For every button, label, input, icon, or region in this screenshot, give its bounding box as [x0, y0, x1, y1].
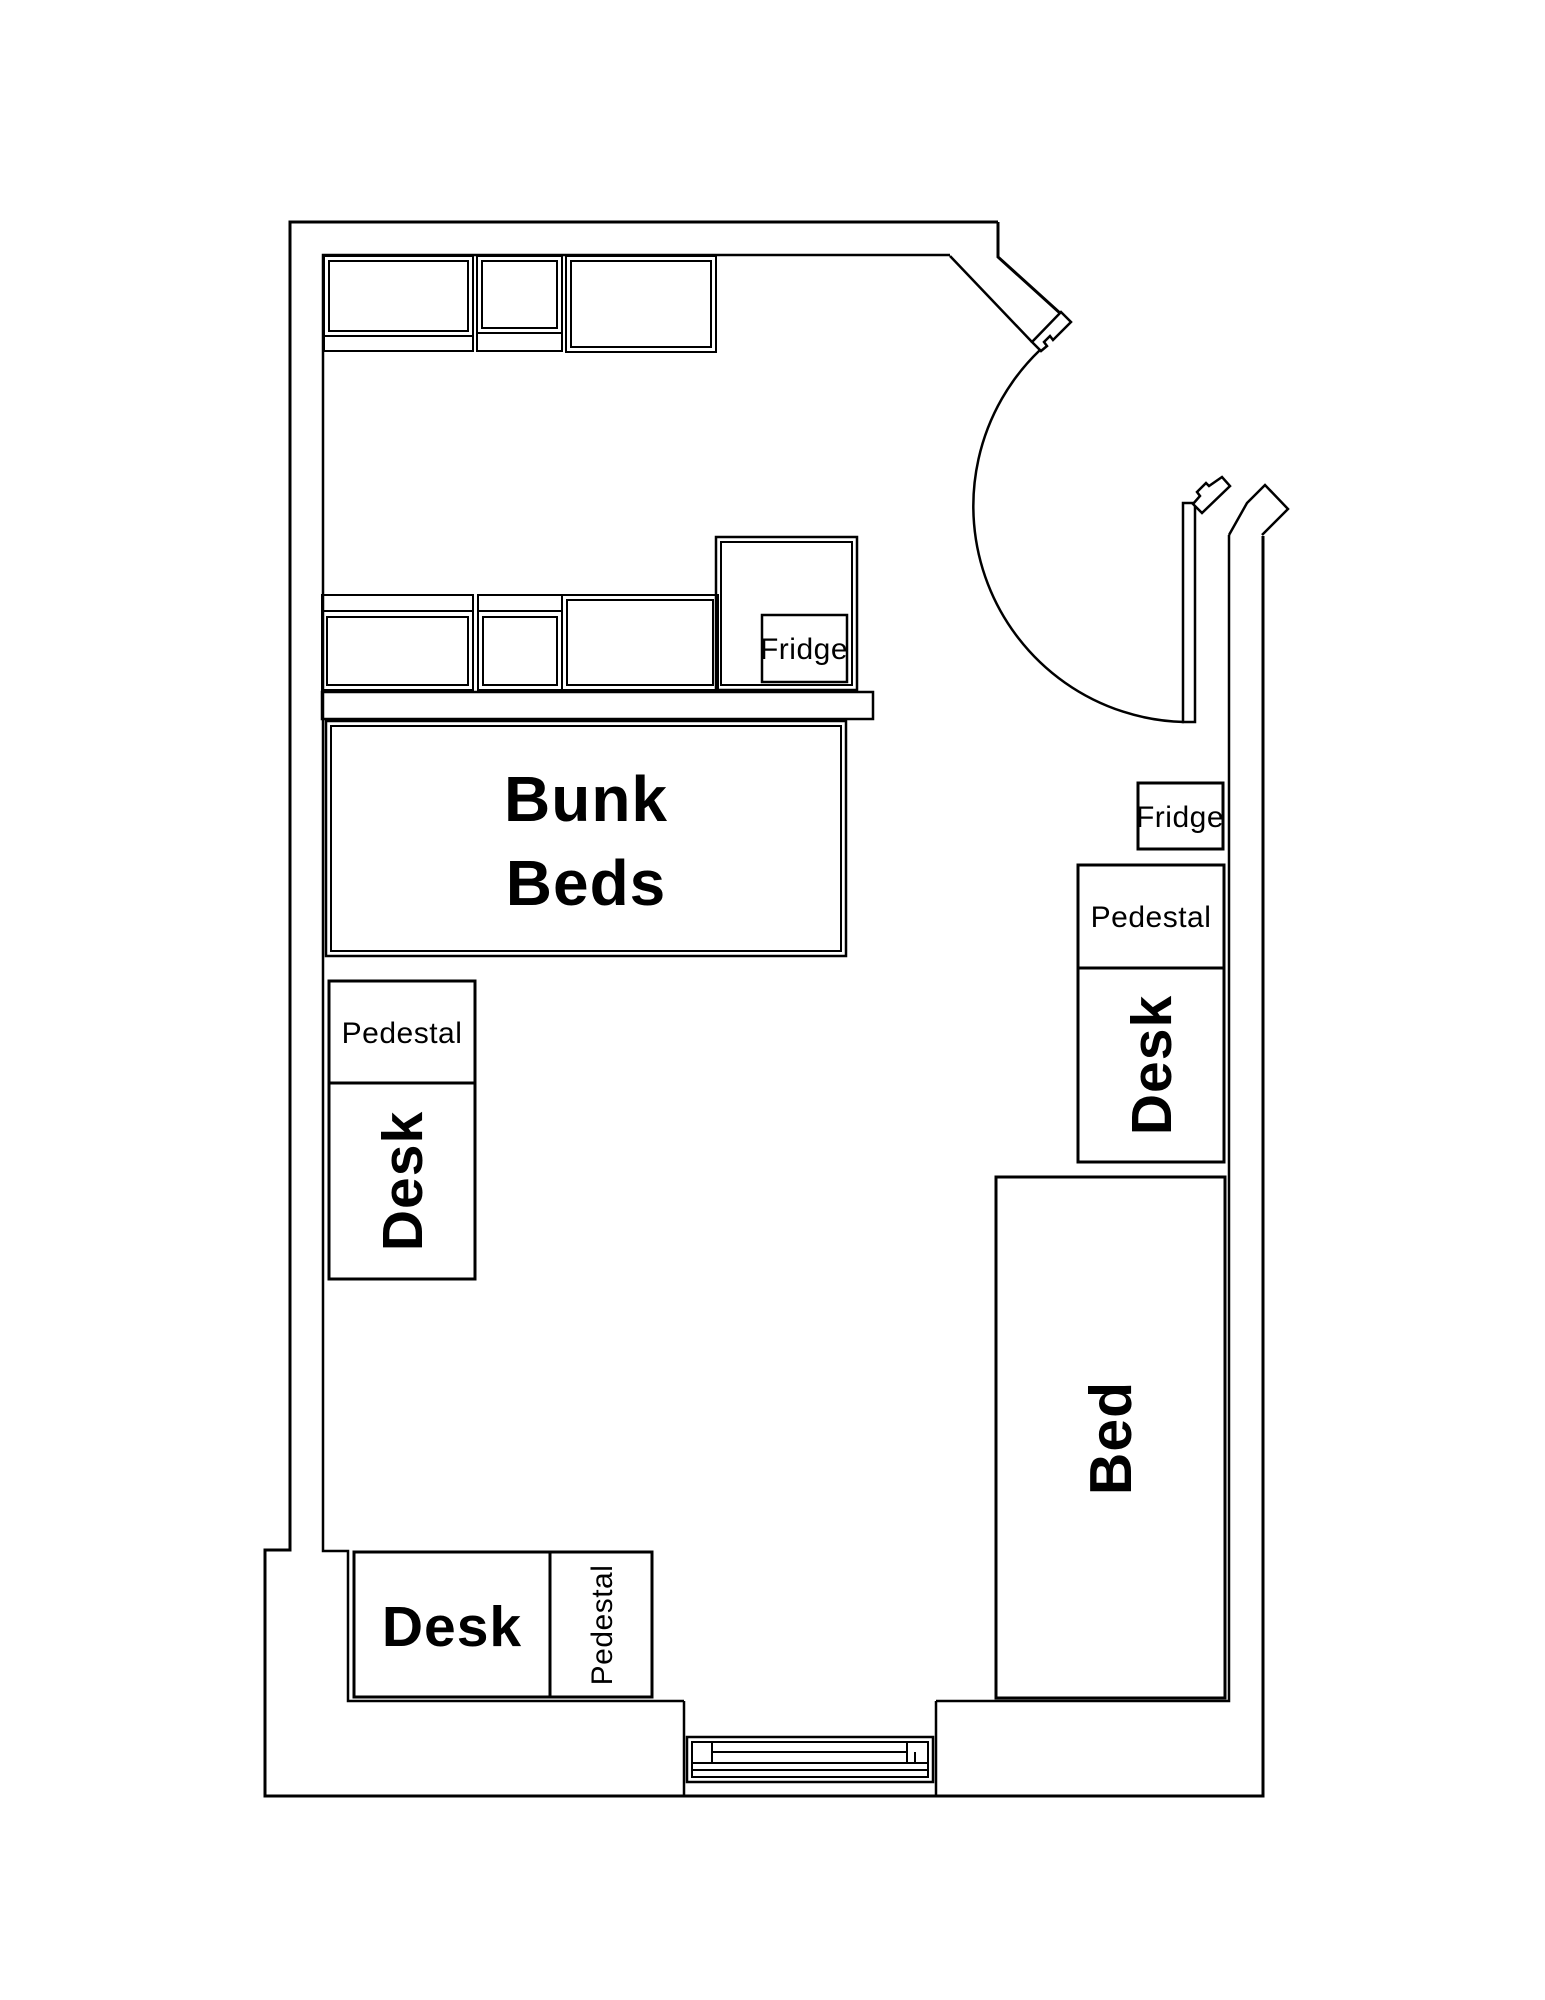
- closet-outer: [478, 595, 562, 690]
- outer-wall: [265, 222, 1263, 1796]
- closet-inner: [571, 261, 711, 347]
- closet-unit: [322, 595, 473, 690]
- door-jamb-icon: [1032, 312, 1071, 351]
- inner-wall-left: [323, 255, 950, 1701]
- wall-end-notch-icon: [1229, 485, 1288, 535]
- fridge-label: Fridge: [1136, 801, 1224, 834]
- bunk-beds: Bunk Beds: [326, 721, 846, 956]
- closet-outer: [562, 595, 718, 690]
- closet-inner: [329, 261, 468, 331]
- closet-row-upper: [324, 256, 716, 352]
- bed: Bed: [996, 1177, 1225, 1698]
- entry-door: [973, 312, 1288, 722]
- bunk-beds-label-line2: Beds: [506, 847, 667, 919]
- closet-inner: [327, 617, 468, 685]
- door-leaf: [1183, 503, 1195, 722]
- door-swing-arc: [973, 350, 1184, 722]
- closet-row-lower: Fridge: [322, 537, 873, 719]
- closet-unit: [478, 595, 562, 690]
- closet-outer: [322, 595, 473, 690]
- desk-group-bottom: Desk Pedestal: [354, 1552, 652, 1697]
- desk-group-right: Pedestal Desk: [1078, 865, 1224, 1162]
- walls: [265, 222, 1263, 1796]
- closet-inner: [482, 261, 557, 328]
- fridge-right-unit: Fridge: [1136, 783, 1224, 849]
- window-frame-inner: [692, 1742, 928, 1777]
- entry-chamfer-outer: [998, 222, 1061, 314]
- pedestal-label: Pedestal: [342, 1017, 463, 1050]
- entry-chamfer-inner: [950, 256, 1032, 342]
- closet-inner: [567, 600, 713, 685]
- window: [687, 1737, 933, 1782]
- desk-label: Desk: [371, 1111, 435, 1251]
- window-frame-outer: [687, 1737, 933, 1782]
- pedestal-label: Pedestal: [1091, 901, 1212, 934]
- fridge-label: Fridge: [760, 633, 848, 666]
- closet-outer: [566, 256, 716, 352]
- desk-label: Desk: [382, 1595, 522, 1659]
- closet-unit: [566, 256, 716, 352]
- closet-unit: [324, 256, 473, 351]
- bed-label: Bed: [1078, 1381, 1144, 1495]
- bunk-beds-outer: [326, 721, 846, 956]
- fridge-nook-outer: [716, 537, 857, 690]
- floor-plan-canvas: Fridge Bunk Beds Pedestal Desk Fridge Pe…: [0, 0, 1545, 2000]
- fridge-closet-unit: Fridge: [716, 537, 857, 690]
- closet-outer: [477, 256, 562, 351]
- closet-unit: [562, 595, 718, 690]
- bunk-beds-label-line1: Bunk: [504, 763, 668, 835]
- desk-group-left: Pedestal Desk: [329, 981, 475, 1279]
- door-hinge-icon: [1193, 477, 1230, 513]
- desk-label: Desk: [1120, 995, 1184, 1135]
- closet-inner: [483, 617, 557, 685]
- floor-plan-page: Fridge Bunk Beds Pedestal Desk Fridge Pe…: [0, 0, 1545, 2000]
- closet-unit: [477, 256, 562, 351]
- pedestal-label: Pedestal: [586, 1565, 619, 1686]
- counter-shelf: [322, 692, 873, 719]
